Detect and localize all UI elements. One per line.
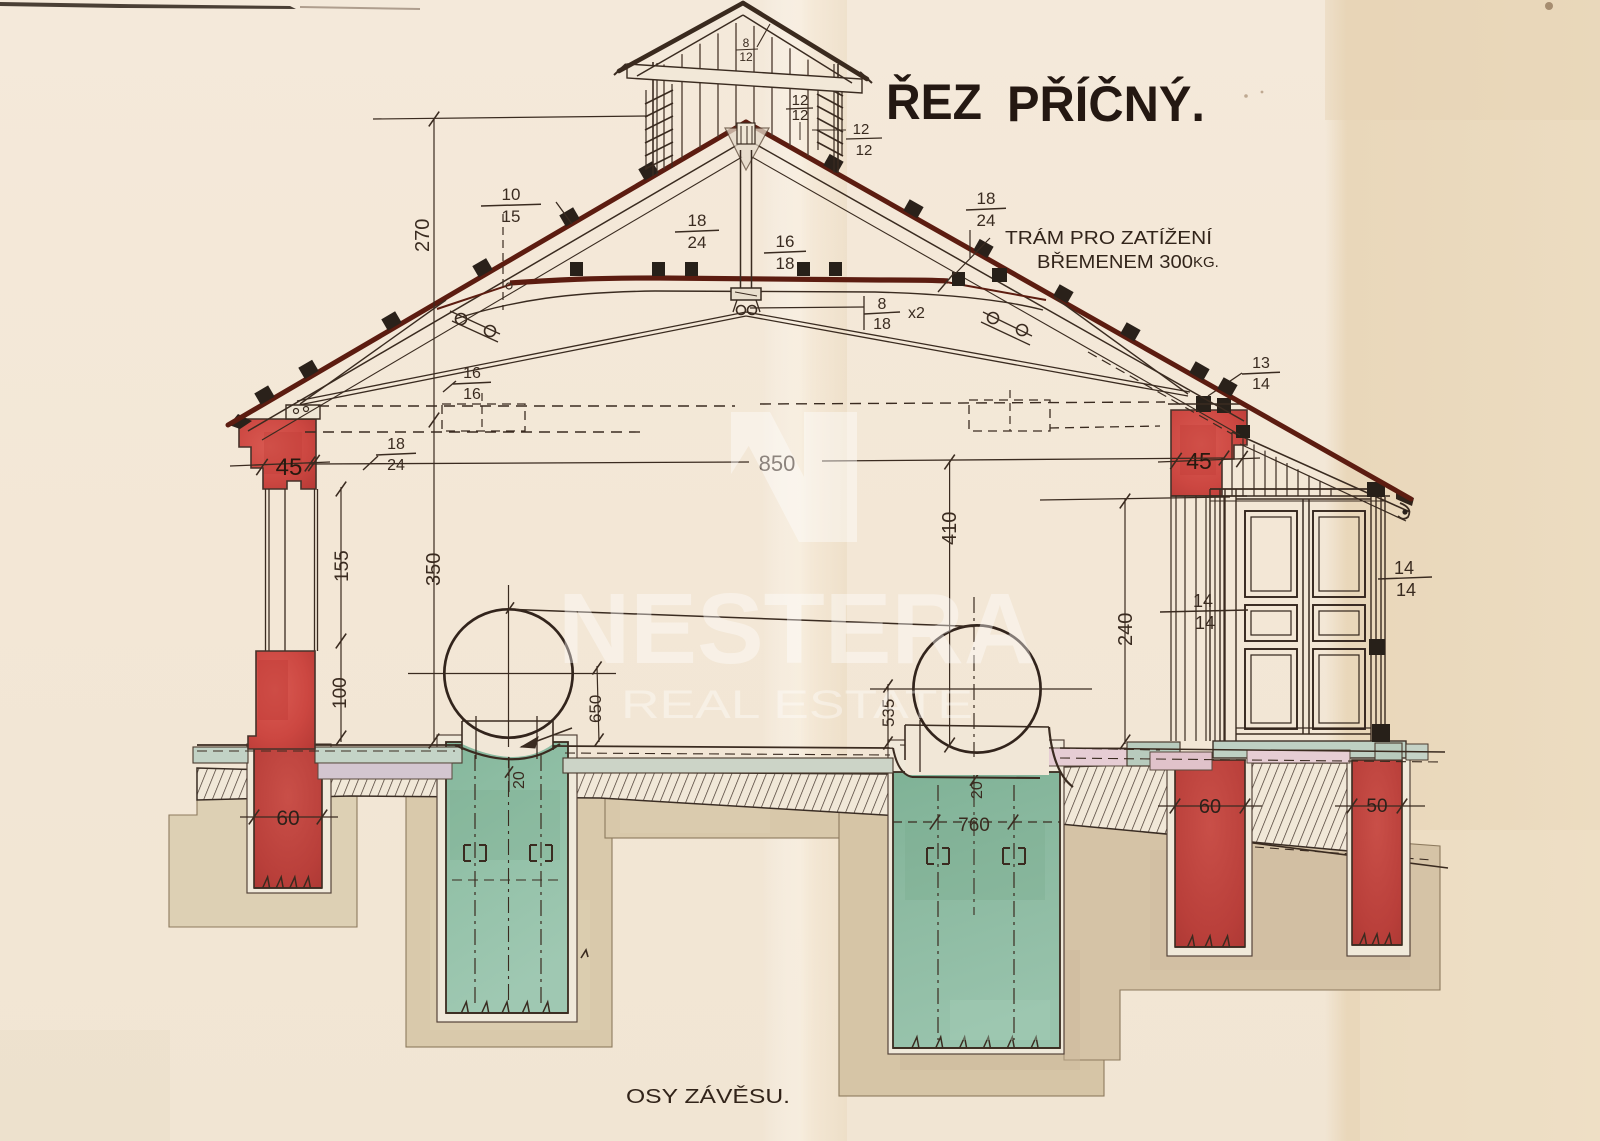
svg-text:50: 50 <box>1366 796 1387 817</box>
svg-text:45: 45 <box>276 454 303 481</box>
svg-text:270: 270 <box>412 219 434 252</box>
svg-text:10: 10 <box>502 185 521 204</box>
svg-text:45: 45 <box>1186 448 1212 474</box>
svg-text:155: 155 <box>332 550 353 582</box>
svg-text:REAL ESTATE: REAL ESTATE <box>621 683 973 727</box>
svg-text:12: 12 <box>853 121 870 138</box>
svg-text:TRÁM PRO ZATÍŽENÍ: TRÁM PRO ZATÍŽENÍ <box>1005 228 1212 248</box>
svg-text:14: 14 <box>1195 613 1215 633</box>
svg-text:KG.: KG. <box>1193 254 1219 271</box>
svg-text:24: 24 <box>977 211 996 230</box>
svg-text:BŘEMENEM 300: BŘEMENEM 300 <box>1037 252 1193 272</box>
svg-text:8: 8 <box>743 36 750 50</box>
svg-text:12: 12 <box>856 142 873 159</box>
svg-text:14: 14 <box>1193 591 1213 611</box>
svg-text:18: 18 <box>776 254 795 273</box>
svg-text:12: 12 <box>739 50 753 64</box>
svg-text:12: 12 <box>792 107 809 124</box>
svg-text:18: 18 <box>688 211 707 230</box>
svg-text:13: 13 <box>1252 355 1270 372</box>
svg-text:350: 350 <box>423 553 445 586</box>
svg-text:OSY ZÁVĚSU.: OSY ZÁVĚSU. <box>626 1085 790 1108</box>
svg-text:14: 14 <box>1396 580 1416 600</box>
svg-text:18: 18 <box>977 189 996 208</box>
svg-text:ŘEZ: ŘEZ <box>886 74 982 130</box>
svg-text:18: 18 <box>873 316 891 333</box>
svg-text:410: 410 <box>939 512 961 545</box>
svg-text:PŘÍČNÝ.: PŘÍČNÝ. <box>1007 75 1205 132</box>
svg-text:650: 650 <box>586 695 605 723</box>
svg-text:NESTERA: NESTERA <box>558 573 1036 685</box>
svg-text:16: 16 <box>463 365 481 382</box>
svg-text:24: 24 <box>688 233 707 252</box>
svg-text:16: 16 <box>463 386 481 403</box>
svg-text:18: 18 <box>387 436 405 453</box>
svg-text:8: 8 <box>878 296 887 313</box>
svg-text:24: 24 <box>387 457 405 474</box>
svg-text:14: 14 <box>1394 558 1414 578</box>
svg-text:60: 60 <box>276 807 299 830</box>
svg-text:16: 16 <box>776 232 795 251</box>
svg-text:760: 760 <box>958 815 990 836</box>
svg-text:240: 240 <box>1115 613 1137 646</box>
svg-text:x2: x2 <box>908 305 925 322</box>
svg-text:100: 100 <box>330 677 351 709</box>
svg-text:15: 15 <box>502 207 521 226</box>
svg-text:60: 60 <box>1199 796 1221 818</box>
svg-text:20: 20 <box>511 771 528 789</box>
svg-text:14: 14 <box>1252 376 1270 393</box>
